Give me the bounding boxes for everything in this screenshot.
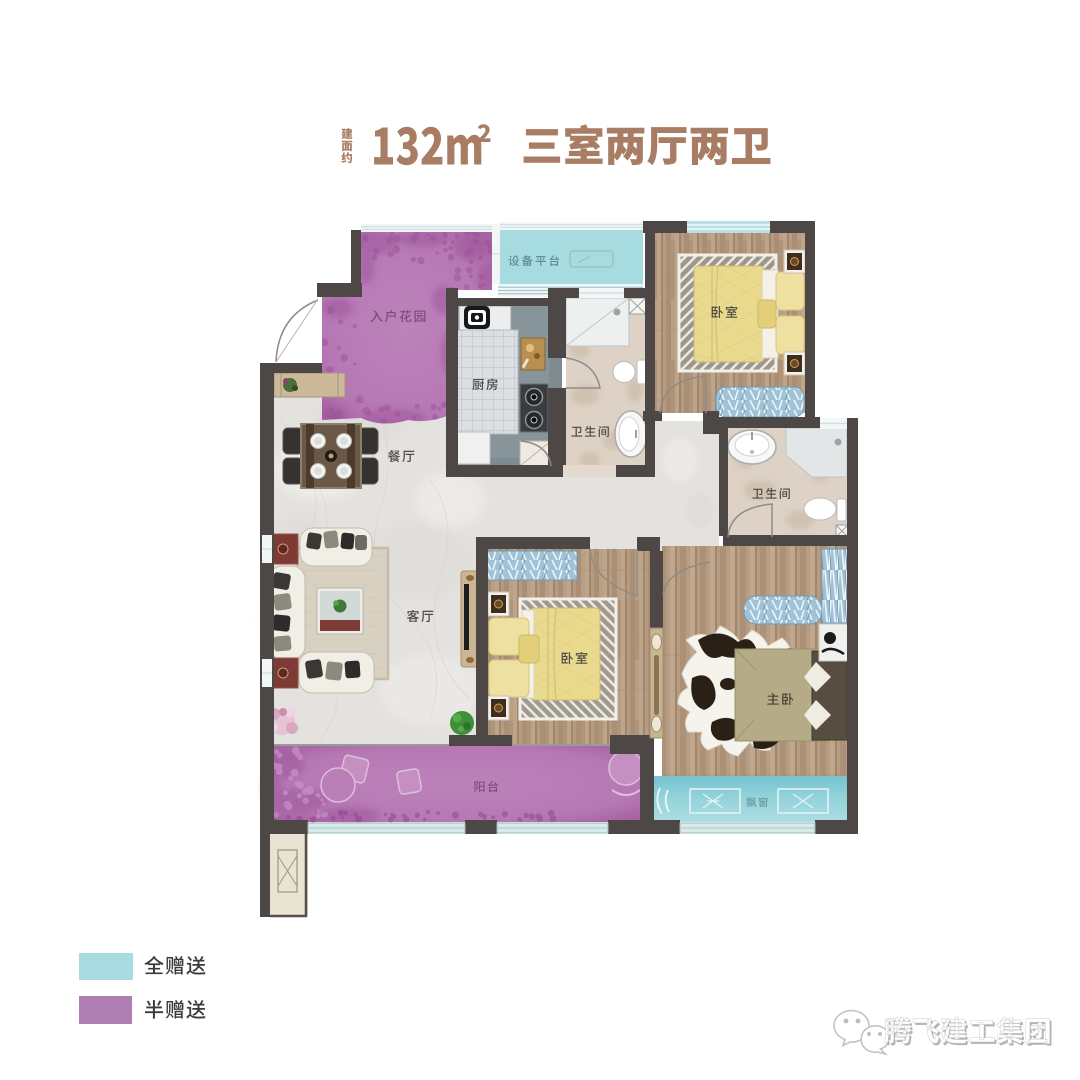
- svg-text:餐厅: 餐厅: [387, 446, 416, 465]
- svg-text:厨房: 厨房: [472, 374, 500, 393]
- svg-text:设备平台: 设备平台: [508, 253, 562, 269]
- svg-text:卧室: 卧室: [710, 302, 739, 321]
- svg-text:入户花园: 入户花园: [370, 306, 428, 325]
- svg-text:飘窗: 飘窗: [746, 795, 770, 810]
- svg-text:约: 约: [341, 150, 353, 166]
- svg-text:腾飞建工集团: 腾飞建工集团: [884, 1009, 1052, 1049]
- svg-text:卧室: 卧室: [560, 648, 589, 667]
- svg-text:2: 2: [477, 114, 492, 149]
- svg-text:132m: 132m: [371, 106, 484, 180]
- svg-text:三室两厅两卫: 三室两厅两卫: [521, 113, 772, 174]
- svg-text:半赠送: 半赠送: [144, 994, 207, 1023]
- svg-text:全赠送: 全赠送: [144, 950, 207, 979]
- svg-text:卫生间: 卫生间: [752, 485, 793, 502]
- svg-text:阳台: 阳台: [473, 778, 500, 795]
- svg-text:客厅: 客厅: [406, 606, 435, 625]
- svg-text:主卧: 主卧: [766, 689, 795, 708]
- svg-text:卫生间: 卫生间: [571, 423, 612, 440]
